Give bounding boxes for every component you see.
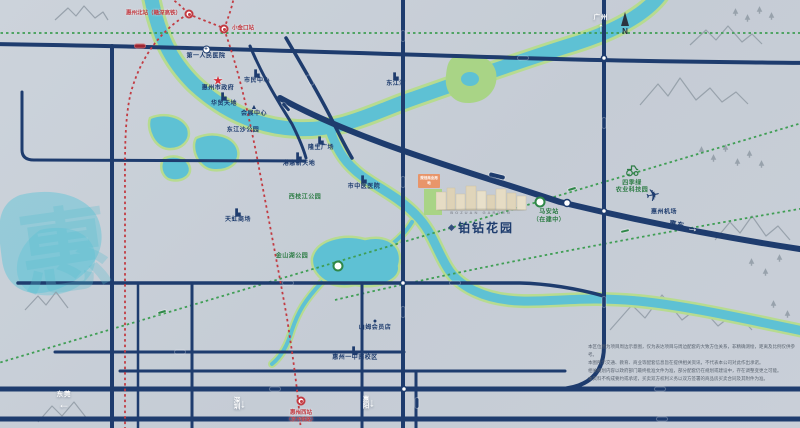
destination-arrow: 东莞 ← <box>57 388 72 410</box>
destination-arrow: 广州 ↑ <box>594 11 609 33</box>
disclaimer-line-1: 本区位图为项目周边示意图，仅为表达项目与周边配套的大致方位关系，非精确测绘，距离… <box>588 343 796 359</box>
destination-arrow: 惠东 → <box>668 217 700 234</box>
arrow-icon: ↓ <box>240 397 246 409</box>
arrow-icon: ↑ <box>598 21 604 33</box>
destination-label: 惠阳 <box>359 396 369 409</box>
disclaimer-line-3: 相关规划内容以政府部门最终批准文件为准，部分配套仍在规划或建设中，存在调整变更之… <box>588 367 796 375</box>
destination-arrow: 惠阳 ↓ <box>357 396 375 409</box>
location-map: BOZUAN GARDEN ◆ 铂钻花园 规划商业用地 惠 N ✈ + 第一人民… <box>0 0 800 428</box>
disclaimer-line-2: 本图所示交通、教育、商业等配套信息旨在提供相关资讯，不代表本公司对此作出承诺。 <box>588 359 796 367</box>
arrow-icon: → <box>686 221 700 235</box>
disclaimer-text: 本区位图为项目周边示意图，仅为表达项目与周边配套的大致方位关系，非精确测绘，距离… <box>588 343 796 383</box>
destination-label: 深圳 <box>230 397 240 410</box>
disclaimer-line-4: 本资料不构成要约或承诺，买卖双方权利义务以双方签署的商品房买卖合同及其附件为准。 <box>588 375 796 383</box>
destination-label: 惠东 <box>668 218 685 231</box>
arrow-icon: ← <box>58 398 70 410</box>
destination-arrow: 深圳 ↓ <box>228 397 246 410</box>
arrow-icon: ↓ <box>369 396 375 408</box>
